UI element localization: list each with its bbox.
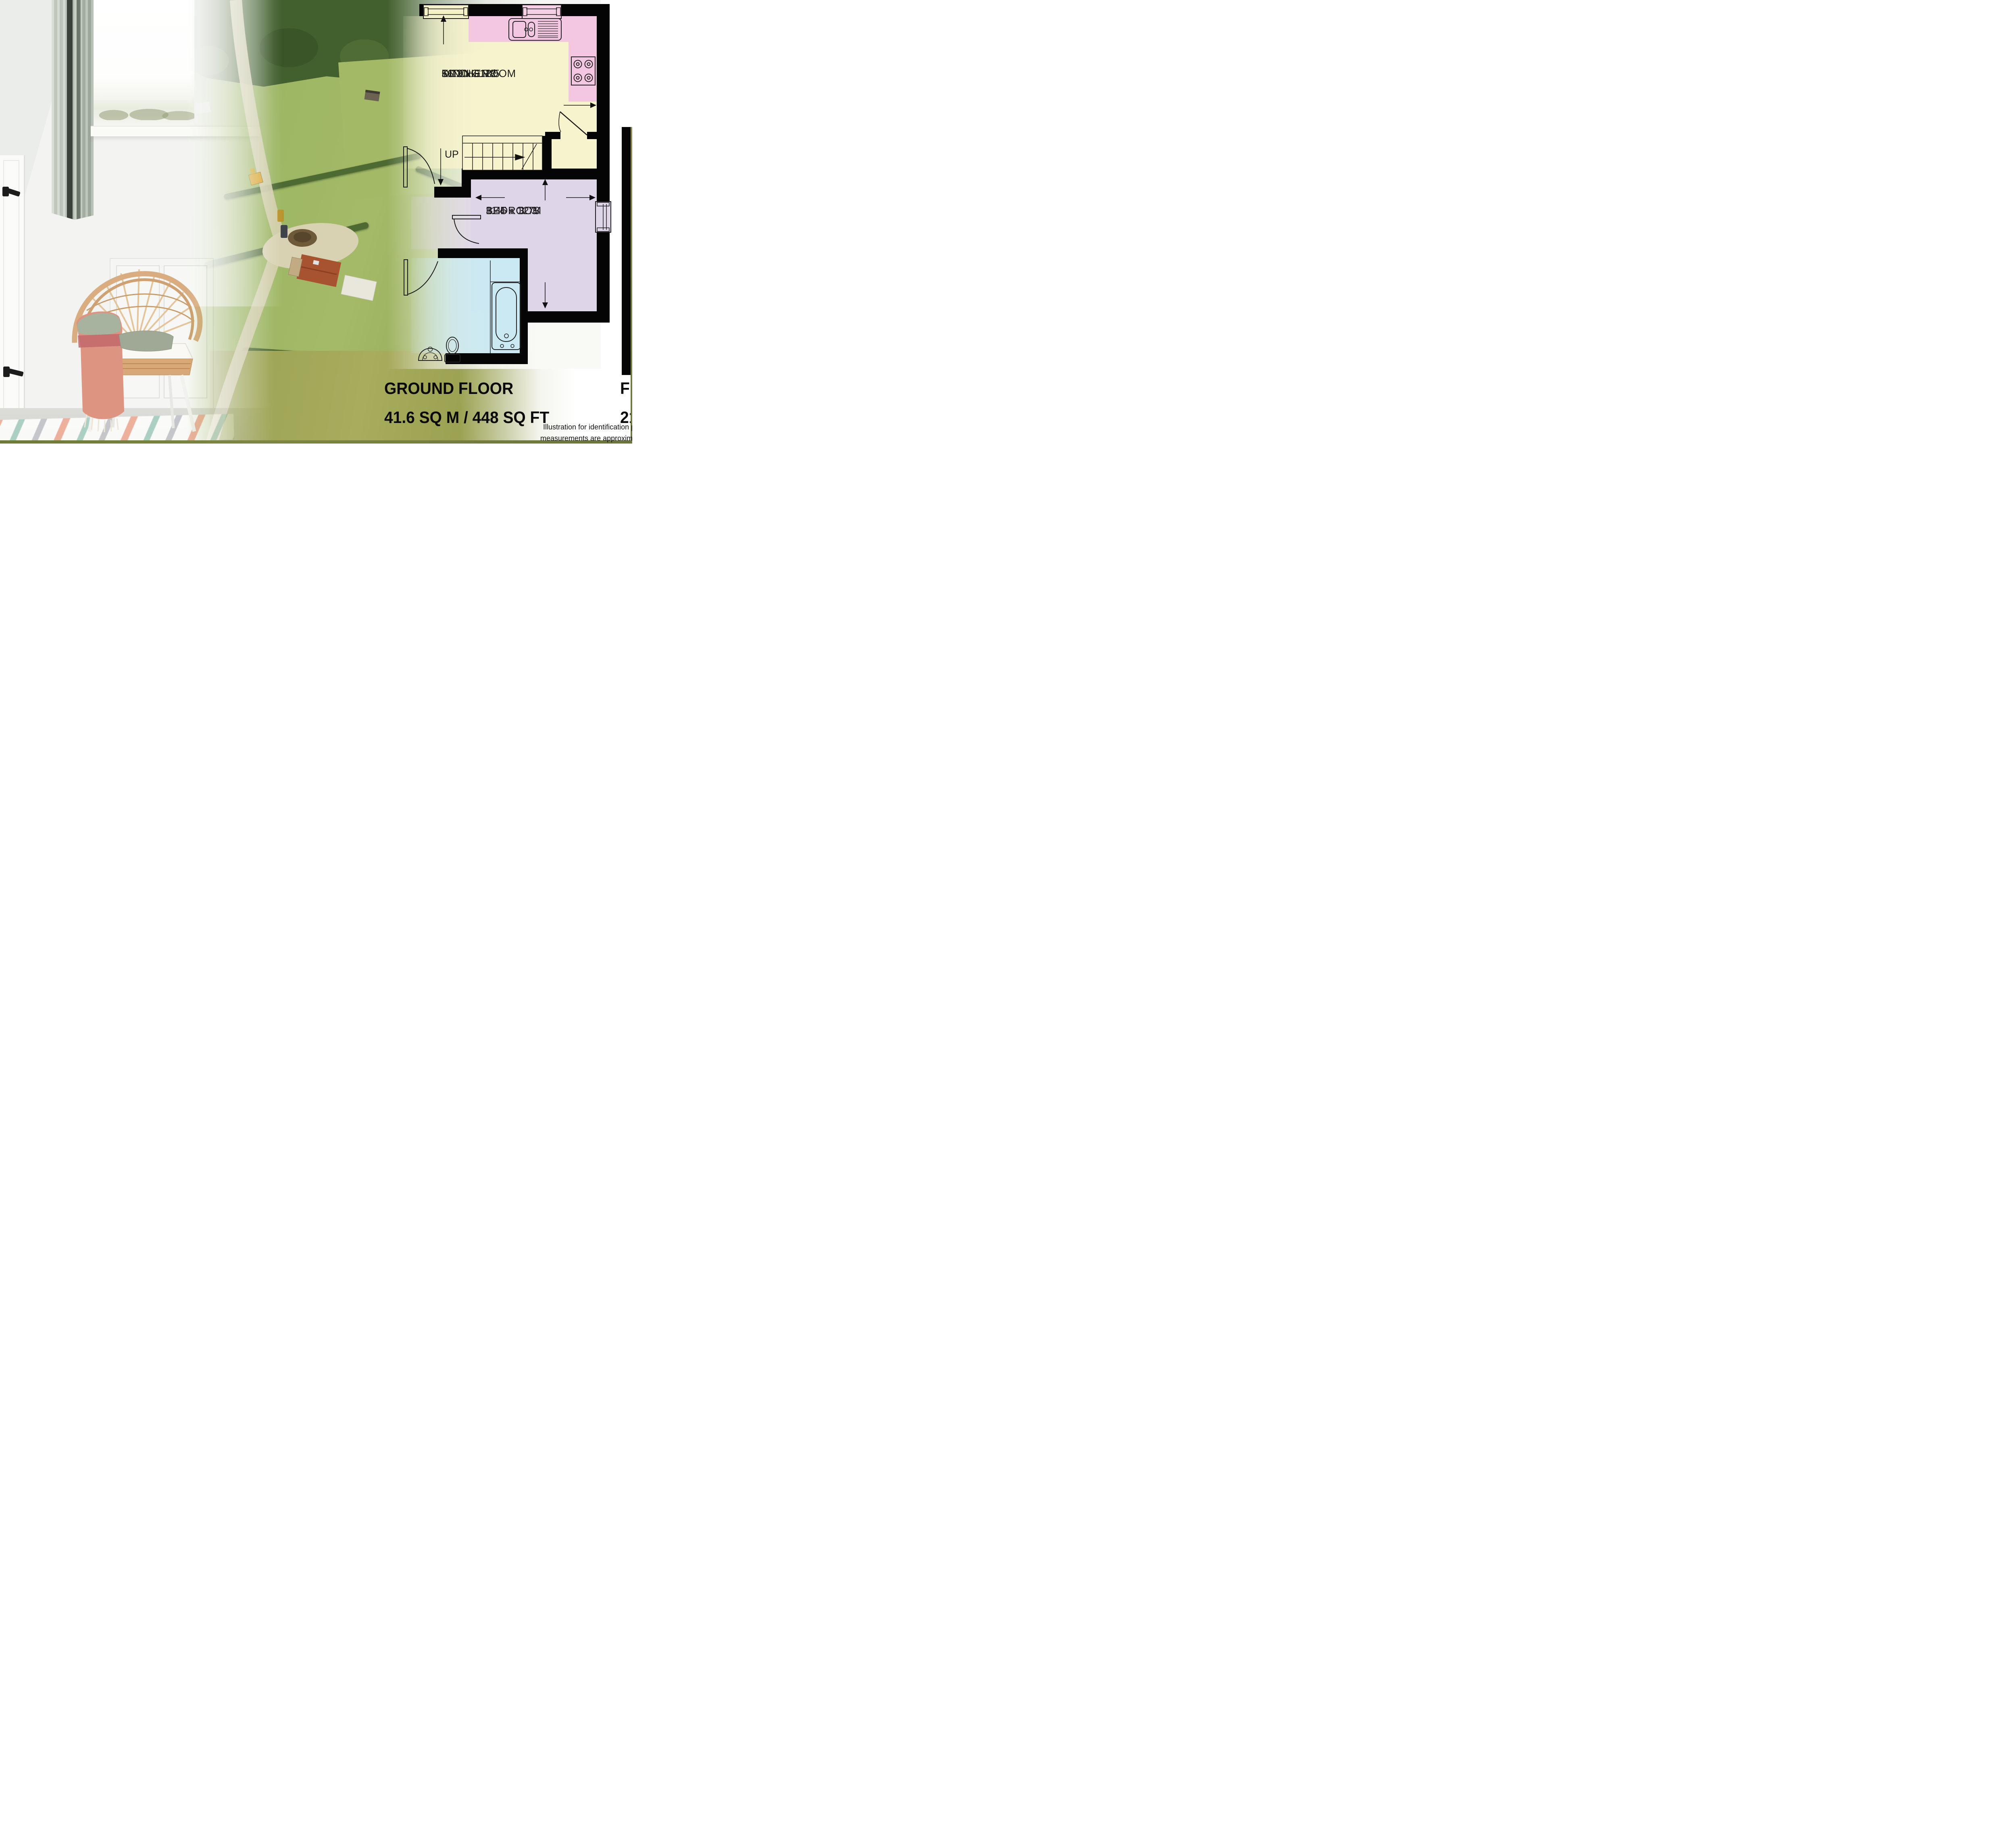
disclaimer-line-2: measurements are approximat xyxy=(540,434,632,443)
cottage-door xyxy=(0,155,25,427)
wicker-chair xyxy=(52,242,222,435)
ground-floor-area: 41.6 SQ M / 448 SQ FT xyxy=(384,408,549,427)
curtain-folds xyxy=(52,0,94,220)
plan-page-background xyxy=(601,0,632,444)
interior-photo xyxy=(0,0,274,444)
window-sill xyxy=(91,126,260,136)
property-listing-montage: KITCHEN / DINING ROOM 5.13 x 3.78 16'10 … xyxy=(0,0,632,444)
throw-blanket-stripe xyxy=(78,334,121,348)
soil-heap-core xyxy=(294,232,311,242)
disclaimer-line-1: Illustration for identification p xyxy=(543,423,632,431)
door-latch-icon xyxy=(3,367,10,377)
window xyxy=(94,0,194,126)
curtain xyxy=(52,0,94,220)
chair-leg xyxy=(181,375,194,431)
ground-floor-title: GROUND FLOOR xyxy=(384,379,513,398)
distant-treeline xyxy=(94,108,194,120)
kitchen-size-imperial: 16'10 x 12'5 xyxy=(442,67,500,80)
stairs-up-label: UP xyxy=(445,149,459,160)
curtain-fold-shadow xyxy=(77,0,81,220)
door-latch-icon xyxy=(2,187,9,196)
patio-slab xyxy=(341,275,377,301)
kitchen-counter xyxy=(569,42,597,102)
chair-leg xyxy=(169,375,173,428)
grass-edge xyxy=(0,440,632,444)
photo-edge-strip xyxy=(631,127,632,444)
folded-blanket xyxy=(119,331,173,351)
room-bathroom xyxy=(411,258,520,353)
room-hall xyxy=(552,139,597,169)
kitchen-counter xyxy=(469,16,597,42)
curtain-fold-shadow xyxy=(67,0,73,220)
bedroom-size-imperial: 11'4 x 12'3 xyxy=(486,204,537,217)
door-panel xyxy=(3,160,19,420)
room-bedroom-entry xyxy=(411,197,472,249)
